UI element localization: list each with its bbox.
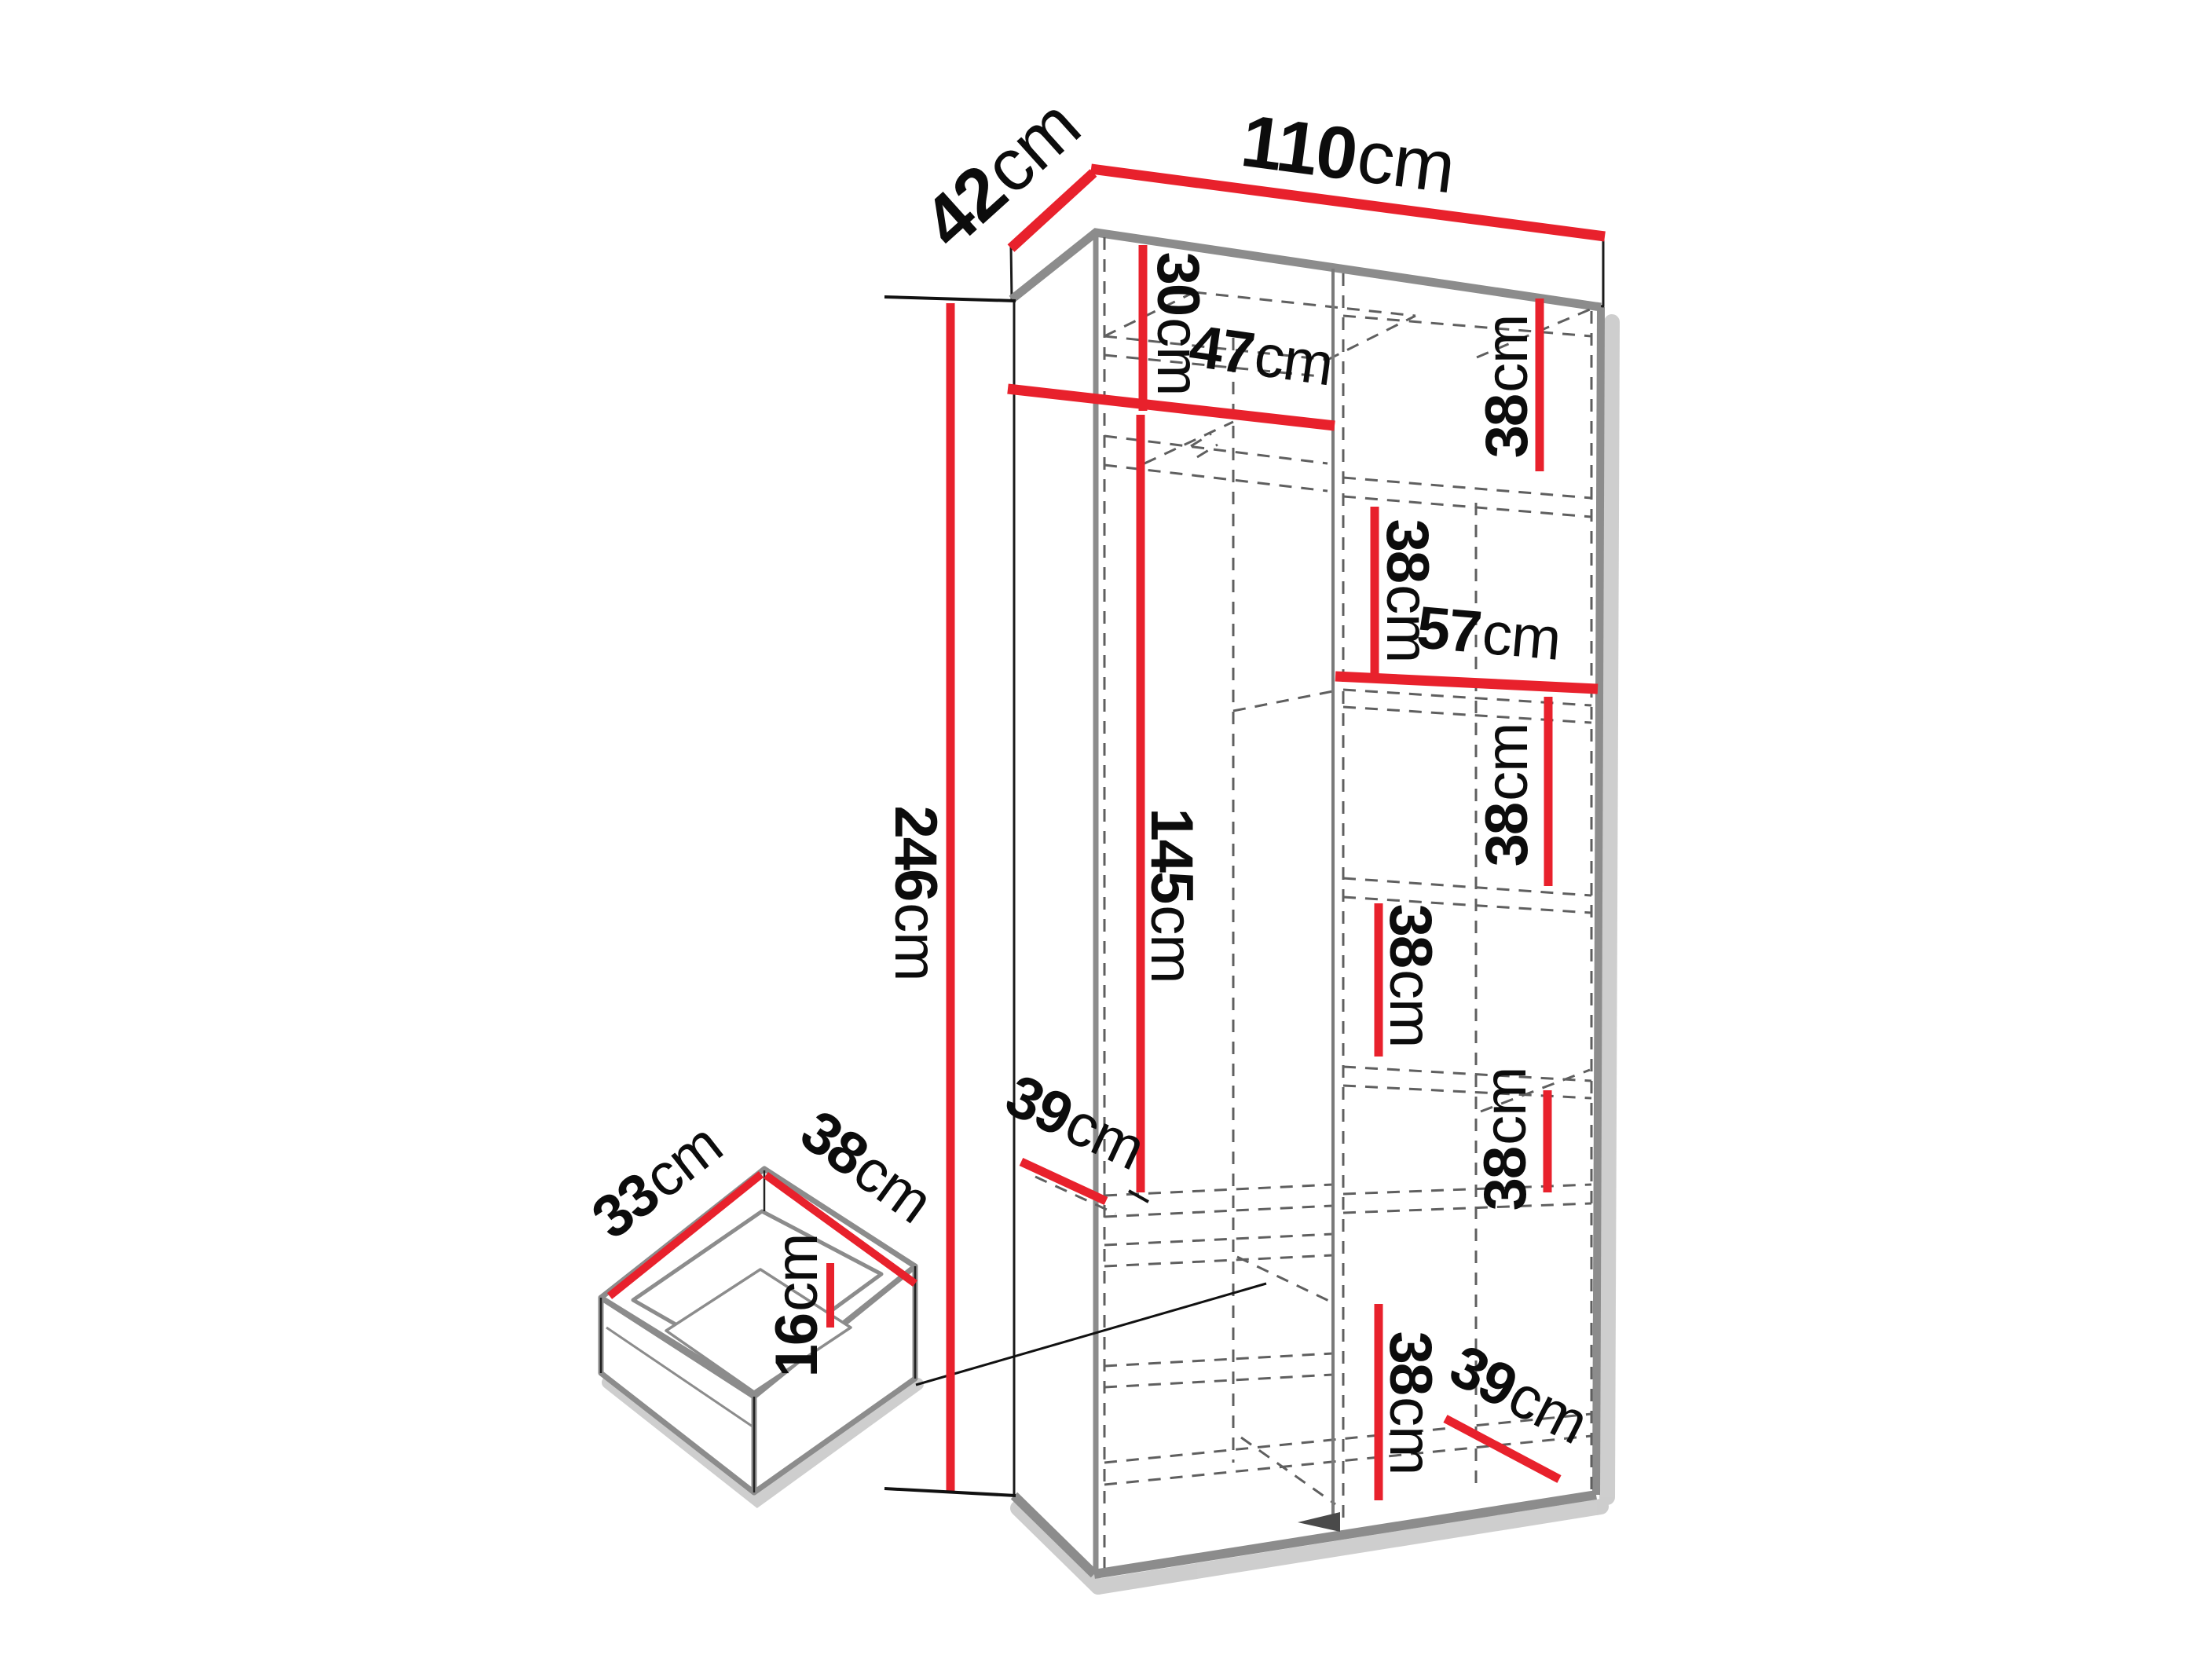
left-side-panel-face [1014,233,1096,1574]
label-145: 145cm [1138,808,1205,983]
diagram-canvas: 42cm 110cm 246cm 30cm 47cm 145cm 39cm 38… [0,0,2212,1659]
wardrobe-dimension-diagram: 42cm 110cm 246cm 30cm 47cm 145cm 39cm 38… [0,0,2212,1659]
label-38-c6: 38cm [1377,1331,1444,1475]
label-38-c3: 38cm [1474,723,1540,867]
label-38-c5: 38cm [1472,1068,1539,1211]
label-38-c4: 38cm [1377,904,1444,1048]
label-38-c1: 38cm [1474,315,1540,459]
label-57: 57cm [1414,594,1563,673]
tick-246-top [884,297,1016,301]
shadow-right-edge [1607,322,1612,1497]
label-height-246: 246cm [882,805,949,980]
right-outer-edge [1596,307,1601,1495]
label-16-drawer: 16cm [764,1234,830,1378]
